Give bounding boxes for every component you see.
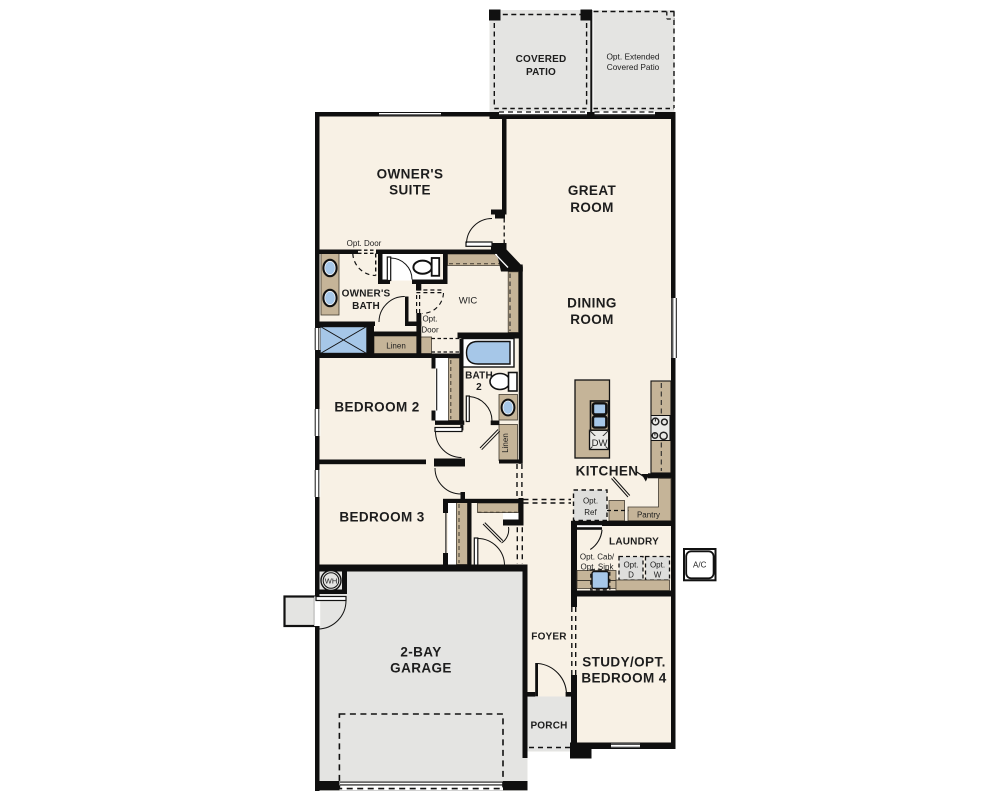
svg-text:Opt.: Opt. (650, 561, 665, 570)
svg-text:W: W (654, 571, 662, 580)
svg-text:Linen: Linen (501, 433, 510, 453)
svg-text:BEDROOM 2: BEDROOM 2 (334, 400, 419, 415)
svg-text:OWNER'S: OWNER'S (342, 289, 391, 300)
svg-text:SUITE: SUITE (389, 183, 431, 198)
svg-text:Linen: Linen (386, 342, 406, 351)
svg-text:GREAT: GREAT (568, 183, 617, 198)
svg-text:WIC: WIC (459, 296, 478, 307)
svg-text:Opt.: Opt. (623, 561, 638, 570)
svg-text:BATH: BATH (465, 371, 493, 382)
svg-text:Covered Patio: Covered Patio (607, 62, 660, 72)
svg-text:Pantry: Pantry (637, 511, 660, 520)
svg-text:Ref: Ref (584, 508, 597, 517)
svg-text:LAUNDRY: LAUNDRY (609, 537, 659, 548)
svg-text:ROOM: ROOM (570, 312, 614, 327)
svg-text:BEDROOM 4: BEDROOM 4 (581, 671, 666, 686)
svg-text:D: D (628, 571, 634, 580)
svg-text:Door: Door (421, 326, 439, 335)
svg-text:GARAGE: GARAGE (390, 661, 452, 676)
svg-text:Opt. Door: Opt. Door (347, 239, 382, 248)
svg-text:BEDROOM 3: BEDROOM 3 (339, 510, 424, 525)
svg-text:OWNER'S: OWNER'S (377, 167, 444, 182)
svg-text:DINING: DINING (567, 296, 617, 311)
svg-text:2: 2 (476, 382, 482, 393)
svg-text:FOYER: FOYER (531, 632, 567, 643)
svg-text:WH: WH (325, 577, 338, 586)
svg-text:PATIO: PATIO (526, 67, 556, 78)
svg-text:PORCH: PORCH (530, 721, 567, 732)
svg-text:BATH: BATH (352, 301, 380, 312)
svg-text:STUDY/OPT.: STUDY/OPT. (582, 655, 666, 670)
svg-text:Opt. Sink: Opt. Sink (581, 563, 615, 572)
svg-text:DW: DW (592, 438, 608, 449)
svg-text:Opt.: Opt. (583, 497, 598, 506)
svg-text:KITCHEN: KITCHEN (576, 464, 639, 479)
svg-text:Opt. Cab/: Opt. Cab/ (580, 553, 615, 562)
svg-text:COVERED: COVERED (516, 54, 567, 65)
svg-text:A/C: A/C (693, 561, 707, 570)
svg-text:Opt.: Opt. (422, 315, 437, 324)
svg-text:ROOM: ROOM (570, 200, 614, 215)
svg-text:Opt. Extended: Opt. Extended (606, 52, 659, 62)
svg-text:2-BAY: 2-BAY (400, 645, 441, 660)
